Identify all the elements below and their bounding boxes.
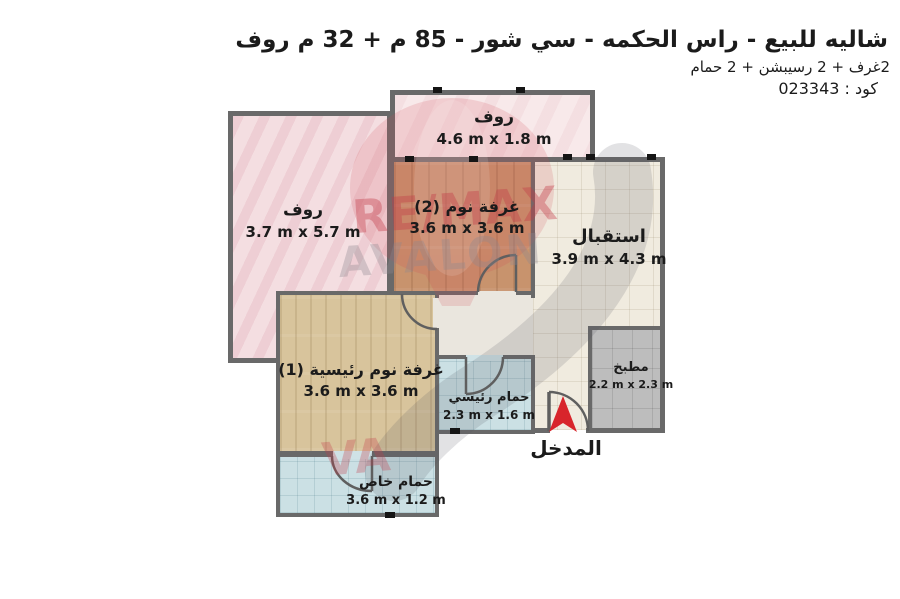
reception-bottom-wall-right <box>586 428 665 433</box>
label-kitchen: مطبخ 2.2 m x 2.3 m <box>589 360 673 391</box>
label-bedroom-2: غرفة نوم (2) 3.6 m x 3.6 m <box>410 197 525 237</box>
door-opening-main-bathroom <box>466 355 503 361</box>
room-dims: 2.2 m x 2.3 m <box>589 378 673 391</box>
room-dims: 3.7 m x 5.7 m <box>246 223 361 241</box>
label-roof-top: روف 4.6 m x 1.8 m <box>437 107 552 148</box>
room-dims: 3.6 m x 3.6 m <box>278 382 444 400</box>
room-name: مطبخ <box>589 360 673 375</box>
room-name: غرفة نوم (2) <box>410 197 525 216</box>
room-name: روف <box>246 200 361 220</box>
room-name: استقبال <box>552 226 667 247</box>
reception-left-wall <box>531 160 535 298</box>
label-master-bedroom: غرفة نوم رئيسية (1) 3.6 m x 3.6 m <box>278 360 444 400</box>
floorplan-page: { "header": { "title": "شاليه للبيع - را… <box>0 0 900 599</box>
door-opening-bedroom-2 <box>478 291 516 297</box>
room-name: حمام رئيسي <box>443 390 535 405</box>
door-opening-private-bathroom <box>333 451 372 459</box>
listing-subtitle: 2غرف + 2 رسيبشن + 2 حمام <box>690 58 890 76</box>
label-private-bathroom: حمام خاص 3.6 m x 1.2 m <box>346 474 446 508</box>
room-dims: 3.6 m x 1.2 m <box>346 493 446 508</box>
room-name: غرفة نوم رئيسية (1) <box>278 360 444 379</box>
reception-bottom-wall-left <box>531 428 550 433</box>
listing-code: كود : 023343 <box>778 79 878 98</box>
label-entrance: المدخل <box>530 436 602 460</box>
door-opening-master-bedroom <box>433 298 441 328</box>
room-dims: 2.3 m x 1.6 m <box>443 408 535 422</box>
page-title: شاليه للبيع - راس الحكمه - سي شور - 85 م… <box>235 27 888 53</box>
reception-right-wall <box>660 157 665 433</box>
room-dims: 3.9 m x 4.3 m <box>552 250 667 268</box>
room-corridor <box>435 295 533 357</box>
room-name: حمام خاص <box>346 474 446 490</box>
reception-top-wall <box>531 157 665 162</box>
room-dims: 3.6 m x 3.6 m <box>410 219 525 237</box>
room-name: روف <box>437 107 552 127</box>
label-roof-left: روف 3.7 m x 5.7 m <box>246 200 361 241</box>
label-reception: استقبال 3.9 m x 4.3 m <box>552 226 667 268</box>
room-dims: 4.6 m x 1.8 m <box>437 130 552 148</box>
label-main-bathroom: حمام رئيسي 2.3 m x 1.6 m <box>443 390 535 422</box>
